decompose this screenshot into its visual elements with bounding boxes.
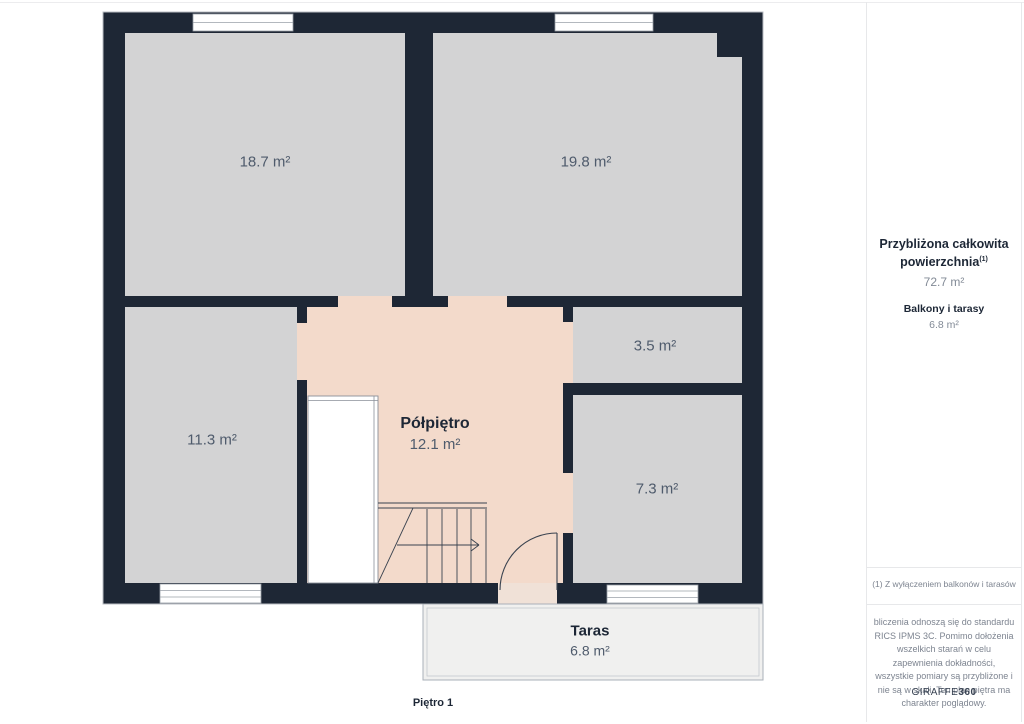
window-bottom-left xyxy=(160,584,261,603)
floor-title: Piętro 1 xyxy=(413,697,453,709)
balconies-value: 6.8 m² xyxy=(867,319,1021,331)
area-summary: Przybliżona całkowita powierzchnia(1) 72… xyxy=(867,235,1021,331)
brand-suffix: 360 xyxy=(958,687,976,698)
window-bottom-right xyxy=(607,585,698,603)
floorplan-page: 18.7 m² 19.8 m² 11.3 m² 3.5 m² 7.3 m² Pó… xyxy=(0,0,1024,724)
room-19-8-floor-top xyxy=(433,33,717,57)
sidebar-divider-top xyxy=(867,567,1021,568)
room-19-8-floor xyxy=(433,57,742,296)
stairwell-void xyxy=(308,396,378,583)
doorway-to-room-19-8 xyxy=(448,296,507,307)
room-18-7-area-label: 18.7 m² xyxy=(240,154,291,171)
room-11-3-area-label: 11.3 m² xyxy=(187,432,237,449)
brand-logo: GIRAFFE360 xyxy=(867,687,1021,698)
floorplan-drawing xyxy=(0,0,866,724)
doorway-to-room-18-7 xyxy=(338,296,392,307)
total-area-label: Przybliżona całkowita powierzchnia(1) xyxy=(867,235,1021,271)
terrace-area: 6.8 m² xyxy=(570,642,610,661)
terrace-door-opening xyxy=(498,583,557,604)
room-19-8-area-label: 19.8 m² xyxy=(561,154,612,171)
landing-name: Półpiętro xyxy=(400,413,469,435)
info-sidebar: Przybliżona całkowita powierzchnia(1) 72… xyxy=(866,2,1022,722)
brand-name: GIRAFFE xyxy=(911,687,958,698)
room-7-3-area-label: 7.3 m² xyxy=(636,481,679,498)
terrace-name: Taras xyxy=(570,621,610,641)
landing-label: Półpiętro 12.1 m² xyxy=(400,413,469,455)
footnote-marker: (1) xyxy=(979,256,988,263)
balconies-label: Balkony i tarasy xyxy=(867,303,1021,315)
doorway-to-room-3-5 xyxy=(563,322,573,383)
footnote-text: (1) Z wyłączeniem balkonów i tarasów xyxy=(867,579,1021,589)
window-top-right xyxy=(555,14,653,31)
room-3-5-area-label: 3.5 m² xyxy=(634,338,677,355)
doorway-to-room-11-3 xyxy=(297,323,307,380)
landing-area: 12.1 m² xyxy=(400,435,469,455)
doorway-to-room-7-3 xyxy=(563,473,573,533)
terrace-label: Taras 6.8 m² xyxy=(570,621,610,660)
sidebar-divider-bottom xyxy=(867,604,1021,605)
window-top-left xyxy=(193,14,293,31)
total-area-value: 72.7 m² xyxy=(867,275,1021,289)
